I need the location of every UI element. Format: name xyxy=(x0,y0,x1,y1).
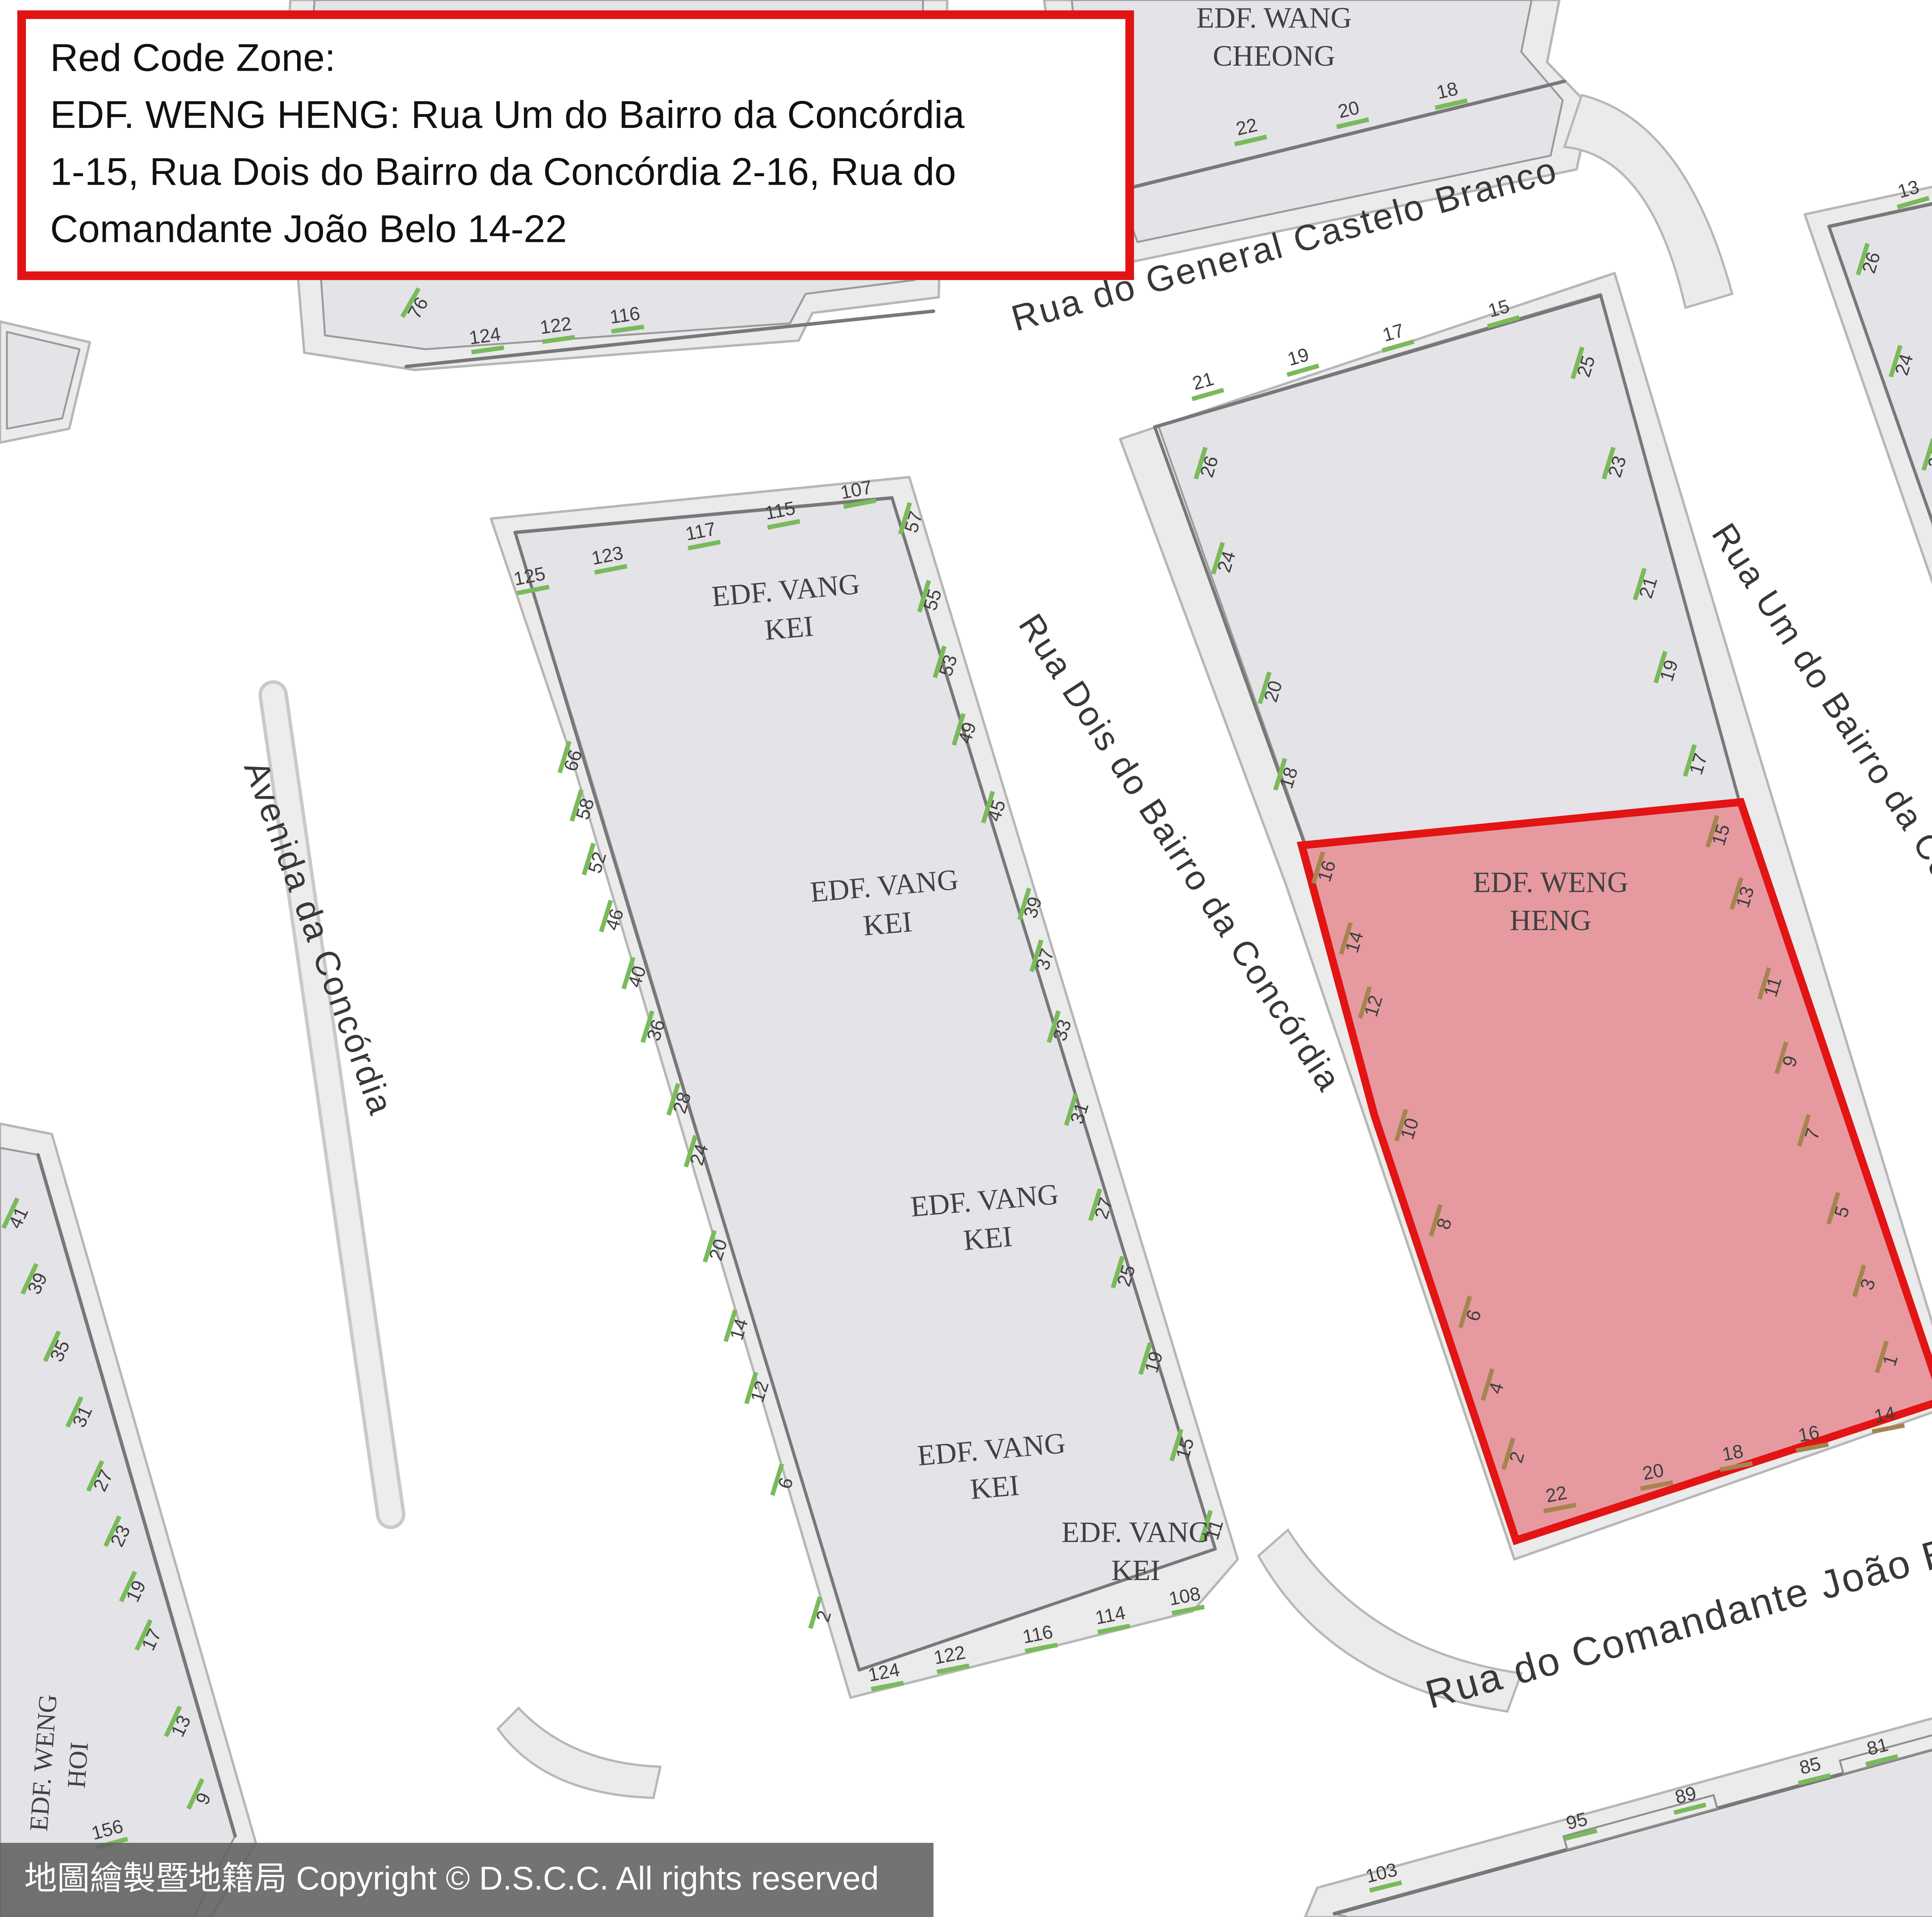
copyright-bar: 地圖繪製暨地籍局 Copyright © D.S.C.C. All rights… xyxy=(0,1843,934,1917)
red-code-zone-polygon xyxy=(1302,802,1932,1540)
copyright-text: 地圖繪製暨地籍局 Copyright © D.S.C.C. All rights… xyxy=(24,1862,879,1898)
edf-vang-kei-2-label-line: KEI xyxy=(862,905,913,942)
house-number: 122 xyxy=(539,313,573,338)
map-stage: 7612412211622201821191715252321191726242… xyxy=(0,0,1932,1917)
edf-weng-heng-label-line: EDF. WENG xyxy=(1473,866,1628,898)
house-number: 14 xyxy=(1872,1402,1897,1427)
street-label-5: Rua do Comandante João Belo xyxy=(1421,1514,1932,1717)
house-number: 21 xyxy=(1190,368,1216,394)
house-number: 124 xyxy=(468,323,502,349)
house-number: 18 xyxy=(1720,1440,1745,1465)
curb-wang-cheong-east xyxy=(1565,95,1732,308)
house-number-group: 21 xyxy=(1185,366,1223,399)
house-number: 116 xyxy=(609,303,641,328)
house-number: 19 xyxy=(1285,344,1311,370)
house-number-group: 107 xyxy=(838,476,876,507)
legend-line-4: Comandante João Belo 14-22 xyxy=(50,201,1126,258)
edf-vang-kei-4-label-line: KEI xyxy=(969,1469,1021,1506)
edf-vang-kei-5-label-line: EDF. VANG xyxy=(1061,1516,1210,1549)
edf-weng-heng-label-line: HENG xyxy=(1510,904,1591,937)
edf-wang-cheong-label-line: CHEONG xyxy=(1213,40,1335,72)
block-vang-kei-building xyxy=(515,498,1215,1670)
edf-weng-hoi-label-line: HOI xyxy=(61,1741,94,1789)
house-number: 20 xyxy=(1641,1459,1665,1484)
house-number-group: 19 xyxy=(1280,342,1318,375)
house-number-group: 103 xyxy=(1364,1859,1402,1891)
edf-wang-cheong-label-line: EDF. WANG xyxy=(1196,2,1352,34)
legend-line-2: EDF. WENG HENG: Rua Um do Bairro da Conc… xyxy=(50,87,1126,144)
legend-line-1: Red Code Zone: xyxy=(50,29,1126,87)
map-canvas: 7612412211622201821191715252321191726242… xyxy=(0,0,1932,1917)
edf-vang-kei-3-label-line: KEI xyxy=(962,1220,1014,1257)
house-number: 17 xyxy=(1380,320,1406,346)
legend-line-3: 1-15, Rua Dois do Bairro da Concórdia 2-… xyxy=(50,143,1126,201)
red-code-zone-legend: Red Code Zone: EDF. WENG HENG: Rua Um do… xyxy=(17,10,1134,280)
edf-vang-kei-1-label-line: KEI xyxy=(763,610,815,646)
house-number: 16 xyxy=(1796,1421,1821,1446)
curb-vang-kei-south xyxy=(498,1708,660,1798)
edf-vang-kei-5-label-line: KEI xyxy=(1111,1554,1160,1587)
house-number: 22 xyxy=(1544,1482,1569,1507)
